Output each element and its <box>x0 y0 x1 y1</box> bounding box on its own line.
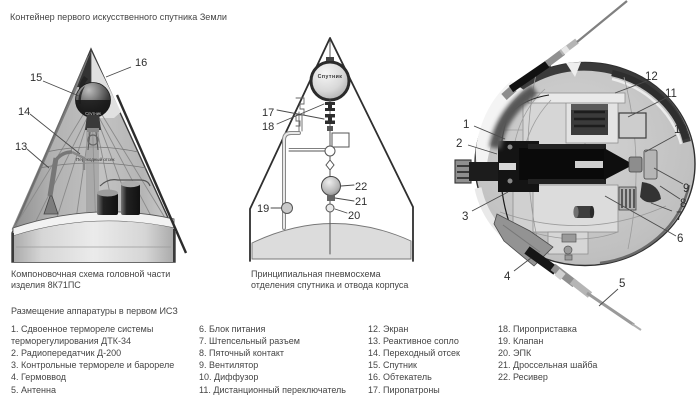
svg-text:13: 13 <box>15 141 27 153</box>
svg-text:6: 6 <box>677 233 683 245</box>
svg-text:14: 14 <box>18 106 30 118</box>
svg-text:20: 20 <box>348 210 360 222</box>
svg-text:22: 22 <box>355 181 367 193</box>
svg-text:2: 2 <box>456 138 462 150</box>
svg-text:19: 19 <box>257 203 269 215</box>
svg-text:16: 16 <box>135 57 147 69</box>
svg-text:12: 12 <box>645 71 658 83</box>
svg-text:17: 17 <box>262 107 274 119</box>
svg-text:11: 11 <box>665 88 677 100</box>
svg-text:8: 8 <box>680 198 686 210</box>
svg-text:15: 15 <box>30 72 42 84</box>
svg-text:5: 5 <box>619 278 625 290</box>
svg-text:7: 7 <box>676 211 682 223</box>
svg-text:21: 21 <box>355 196 367 208</box>
svg-text:18: 18 <box>262 121 274 133</box>
svg-text:1: 1 <box>463 119 469 131</box>
svg-text:4: 4 <box>504 271 511 283</box>
svg-text:9: 9 <box>683 183 689 195</box>
svg-text:3: 3 <box>462 211 468 223</box>
svg-text:10: 10 <box>674 124 687 136</box>
svg-text:Спутник: Спутник <box>318 74 343 80</box>
